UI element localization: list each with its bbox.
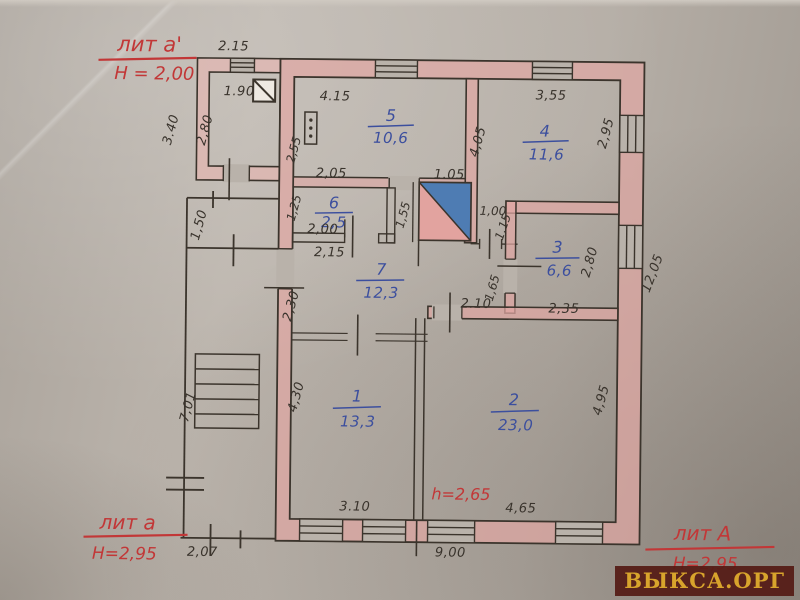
room5-number: 5 <box>386 106 396 125</box>
site-watermark: ВЫКСА.ОРГ <box>615 566 794 596</box>
dim-room2-height: 4,95 <box>590 383 613 417</box>
room-labels: 5 10,6 4 11,6 6 2,5 3 6,6 7 12,3 1 13,3 … <box>313 105 581 435</box>
wall-room4-room3 <box>506 201 619 214</box>
dim-room6-below: 2,15 <box>314 245 345 260</box>
dim-room4-width: 3,55 <box>536 88 567 103</box>
dim-room1-window: 3.10 <box>339 499 370 514</box>
dim-annex-inner-width: 1.90 <box>224 84 255 99</box>
dim-stair-height: 1,55 <box>393 200 414 229</box>
liter-main: лит А <box>673 521 732 546</box>
room2-area: 23,0 <box>498 416 534 434</box>
dim-room6-width: 2,05 <box>316 166 347 181</box>
annex-window <box>230 58 254 72</box>
wall-hall-room1 <box>291 314 427 356</box>
dim-annex-top-width: 2.15 <box>218 39 249 54</box>
room4-right-window <box>620 115 644 152</box>
room4-number: 4 <box>540 121 550 140</box>
room5-window <box>375 60 417 78</box>
dim-stair-width: 1.05 <box>434 167 465 182</box>
floor-plan-photo: лит а' Н = 2,00 лит а Н=2,95 лит А Н=2,9… <box>0 0 800 600</box>
dim-room3-width: 2,35 <box>548 302 579 317</box>
room4-area: 11,6 <box>529 145 565 163</box>
wall-room1-room2 <box>414 318 425 520</box>
corridor-walls <box>165 191 279 557</box>
room2-number: 2 <box>509 390 519 409</box>
room7-number: 7 <box>376 260 387 279</box>
dim-hall-door: 2.10 <box>460 297 491 312</box>
ceiling-height-note: h=2,65 <box>431 484 490 504</box>
dim-corridor-height: 7,01 <box>177 390 200 424</box>
room3-right-window <box>618 225 642 268</box>
dim-building-width: 9,00 <box>435 545 466 560</box>
room1-area: 13,3 <box>340 412 376 430</box>
liter-annex-upper: лит а' <box>116 32 182 57</box>
dim-porch-width: 2,07 <box>187 545 218 560</box>
room2-window-b <box>555 522 602 544</box>
interior-walls <box>290 77 621 522</box>
room1-window-a <box>299 519 342 541</box>
main-building-walls <box>261 59 644 545</box>
stove-symbol <box>253 79 275 101</box>
stair-square <box>412 182 471 267</box>
dim-annex-outer-height: 3.40 <box>160 113 183 147</box>
dim-room3-window: 2,80 <box>579 245 602 279</box>
floor-plan-drawing: лит а' Н = 2,00 лит а Н=2,95 лит А Н=2,9… <box>0 0 800 600</box>
annex-door-gap <box>223 164 249 182</box>
height-annex-upper: Н = 2,00 <box>114 63 194 85</box>
room4-top-window <box>532 61 572 79</box>
dim-corridor-width: 1,50 <box>188 208 211 242</box>
liter-annex-lower: лит а <box>99 510 156 535</box>
dim-room5-width: 4.15 <box>320 89 351 104</box>
room1-window-b <box>362 520 405 542</box>
room1-number: 1 <box>352 387 362 406</box>
room3-number: 3 <box>552 238 562 257</box>
liter-annotations: лит а' Н = 2,00 лит а Н=2,95 лит А Н=2,9… <box>83 32 780 575</box>
room7-area: 12,3 <box>363 284 399 302</box>
room2-window-a <box>427 520 474 542</box>
staircase <box>195 354 260 429</box>
room3-area: 6,6 <box>547 262 573 280</box>
height-annex-lower: Н=2,95 <box>92 544 157 565</box>
dimension-labels: 2.15 1.90 3.40 2,80 4.15 2,55 3,55 4,05 … <box>156 38 670 564</box>
room5-area: 10,6 <box>373 129 409 147</box>
dim-room4-window: 2,95 <box>595 116 618 150</box>
radiator-symbol <box>305 112 317 144</box>
room6-number: 6 <box>329 193 339 212</box>
dim-room2-window: 4,65 <box>505 501 536 516</box>
dim-room6-inner: 2,00 <box>307 222 338 237</box>
